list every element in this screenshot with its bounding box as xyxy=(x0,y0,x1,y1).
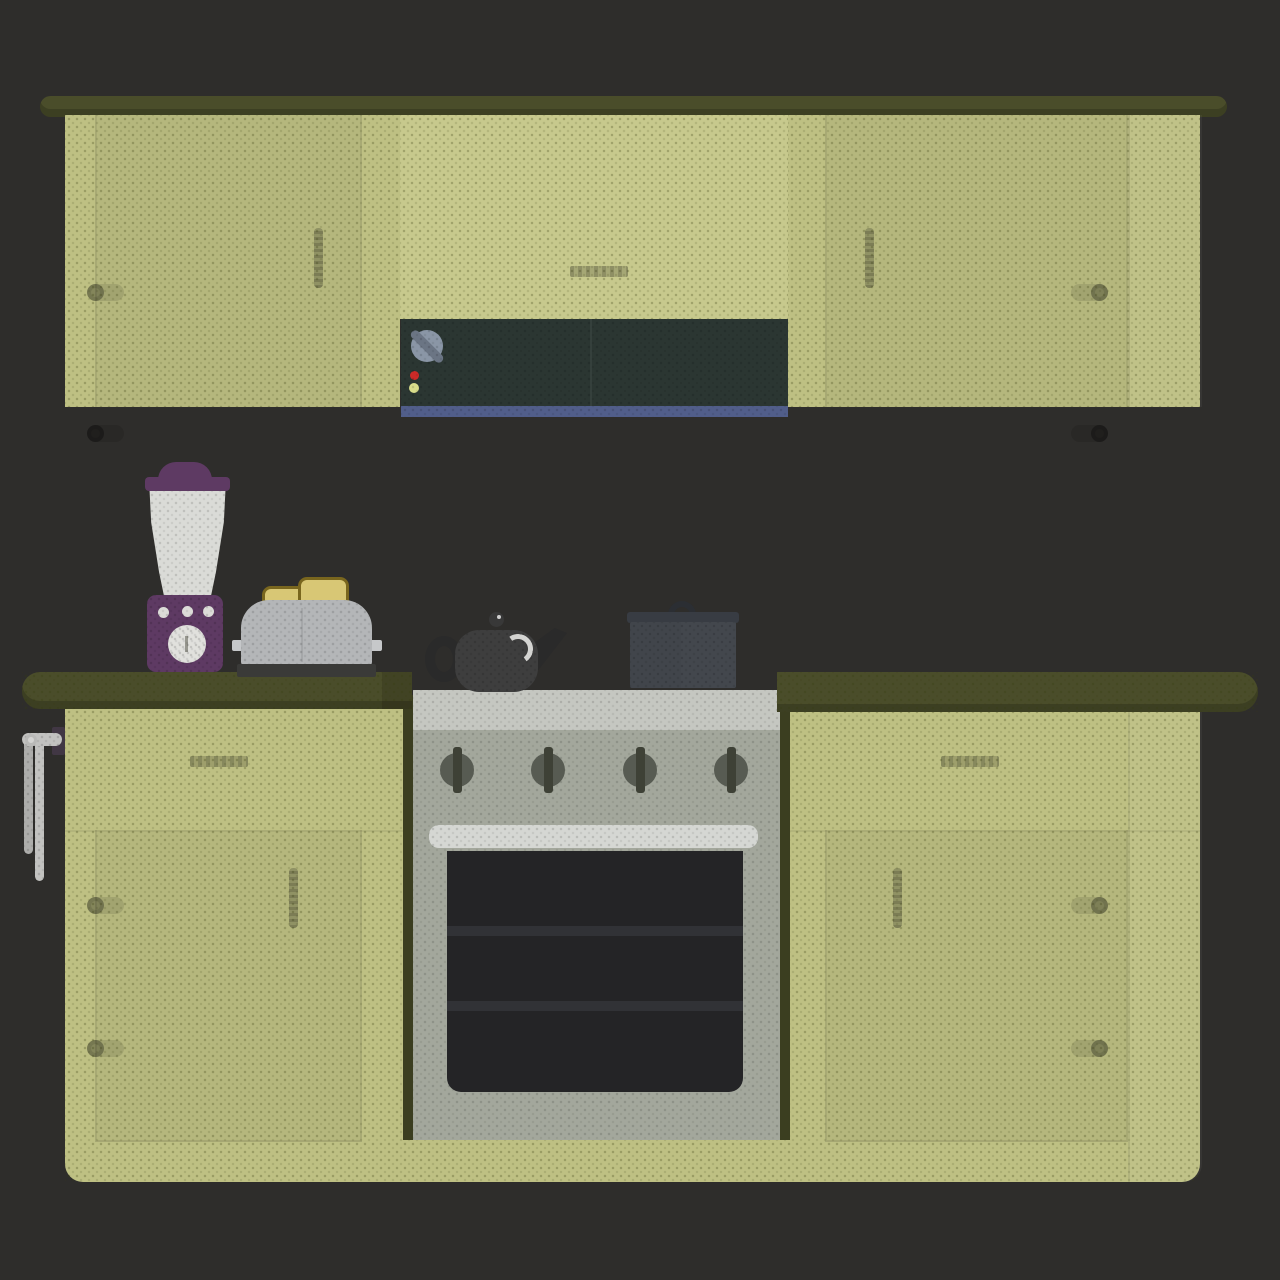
blender-base xyxy=(147,595,223,672)
blender-button xyxy=(158,607,169,618)
upper-shelf-rail xyxy=(40,96,1227,117)
cabinet-side-panel xyxy=(1128,115,1202,407)
hood-indicator-red xyxy=(410,371,419,380)
hinge-pin xyxy=(87,897,104,914)
hinge xyxy=(1071,425,1108,442)
blender-lid xyxy=(145,477,230,491)
stove-side-filler-left xyxy=(403,695,413,1140)
burner-knob xyxy=(714,753,748,787)
toaster-slot-seam xyxy=(301,608,303,662)
toaster-base xyxy=(237,664,376,677)
toaster-body xyxy=(241,600,372,666)
oven-rack-line xyxy=(447,1001,743,1011)
blender xyxy=(145,460,230,672)
upper-right-cabinet xyxy=(788,115,1200,407)
towel-rail-pivot xyxy=(25,734,37,746)
hinge xyxy=(1071,284,1108,301)
drawer-handle xyxy=(190,756,248,767)
hinge-pin xyxy=(1091,1040,1108,1057)
hinge xyxy=(1071,897,1108,914)
blender-button xyxy=(182,606,193,617)
hinge-pin xyxy=(87,425,104,442)
hinge xyxy=(87,425,124,442)
blender-dial xyxy=(168,625,206,663)
cabinet-side-panel xyxy=(1128,708,1202,1182)
range-hood xyxy=(401,319,788,406)
upper-middle-cabinet xyxy=(400,115,788,319)
pot-body xyxy=(630,622,736,688)
hinge xyxy=(87,284,124,301)
blender-dial-pointer xyxy=(185,636,188,652)
hinge-pin xyxy=(87,1040,104,1057)
hinge-pin xyxy=(87,284,104,301)
burner-knob xyxy=(531,753,565,787)
stove-top-panel xyxy=(413,690,780,730)
hood-indicator-yellow xyxy=(409,383,419,393)
kettle-lid-knob xyxy=(489,612,504,627)
burner-knob-bar xyxy=(636,747,645,793)
burner-knob xyxy=(440,753,474,787)
counter-right xyxy=(777,672,1258,712)
stove xyxy=(413,690,780,1140)
lower-right-cabinet-door xyxy=(825,830,1128,1142)
hinge xyxy=(87,1040,124,1057)
counter-left xyxy=(22,672,412,709)
upper-left-cabinet xyxy=(65,115,400,407)
hinge-pin xyxy=(1091,897,1108,914)
towel-long xyxy=(35,742,44,881)
burner-knob-bar xyxy=(544,747,553,793)
oven-rack-line xyxy=(447,926,743,936)
cabinet-door-handle xyxy=(289,868,298,928)
hinge-pin xyxy=(1091,425,1108,442)
stove-side-filler-right xyxy=(780,695,790,1140)
hinge xyxy=(87,897,124,914)
cabinet-door-handle xyxy=(893,868,902,928)
hood-seam xyxy=(590,319,592,406)
towel-short xyxy=(24,742,33,854)
hood-vent-strip xyxy=(401,406,788,417)
oven-door-handle xyxy=(429,825,758,848)
hinge xyxy=(1071,1040,1108,1057)
lower-left-cabinet-door xyxy=(95,830,362,1142)
burner-knob-bar xyxy=(453,747,462,793)
cabinet-door-handle xyxy=(865,228,874,288)
hood-knob xyxy=(411,330,443,362)
cabinet-drawer-handle xyxy=(570,266,628,277)
kitchen-illustration xyxy=(0,0,1280,1280)
drawer-handle xyxy=(941,756,999,767)
blender-button xyxy=(203,606,214,617)
cabinet-door-handle xyxy=(314,228,323,288)
hinge-pin xyxy=(1091,284,1108,301)
oven-door-glass xyxy=(447,851,743,1092)
burner-knob xyxy=(623,753,657,787)
hood-knob-grip xyxy=(409,328,445,364)
blender-jar xyxy=(148,491,227,595)
burner-knob-bar xyxy=(727,747,736,793)
